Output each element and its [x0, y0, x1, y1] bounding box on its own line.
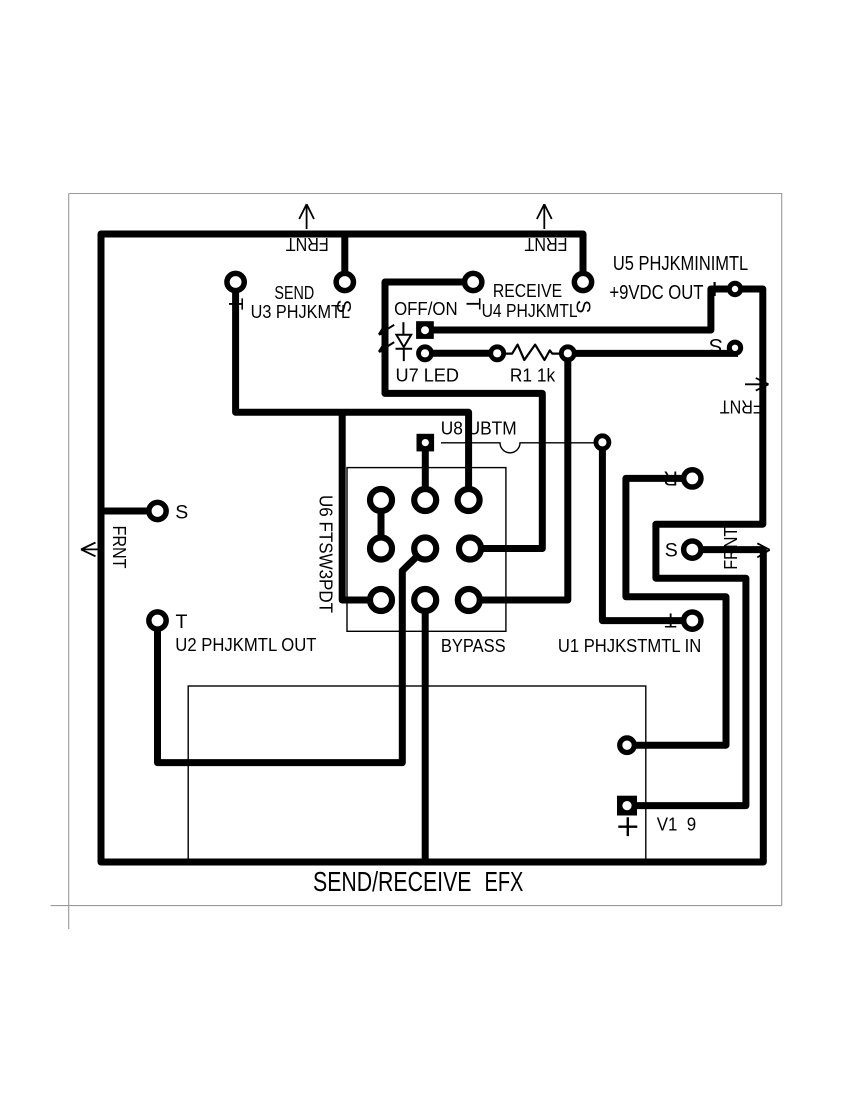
svg-text:S: S	[332, 300, 354, 313]
svg-text:FRNT: FRNT	[720, 527, 741, 570]
svg-text:T: T	[176, 611, 188, 633]
svg-text:U6 FTSW3PDT: U6 FTSW3PDT	[316, 495, 337, 613]
svg-text:SEND: SEND	[274, 282, 314, 303]
svg-text:U1 PHJKSTMTL IN: U1 PHJKSTMTL IN	[558, 635, 701, 656]
svg-text:FRNT: FRNT	[720, 397, 763, 418]
svg-text:S: S	[571, 300, 593, 313]
svg-text:BYPASS: BYPASS	[441, 635, 506, 656]
svg-text:T: T	[664, 608, 676, 630]
svg-text:V1 9: V1 9	[657, 814, 697, 835]
svg-text:U7 LED: U7 LED	[396, 365, 460, 386]
svg-text:S: S	[665, 540, 678, 562]
svg-text:U5 PHJKMINIMTL: U5 PHJKMINIMTL	[613, 253, 748, 275]
svg-text:OFF/ON: OFF/ON	[394, 298, 458, 319]
svg-text:U4 PHJKMTL: U4 PHJKMTL	[482, 300, 578, 321]
svg-text:U2 PHJKMTL OUT: U2 PHJKMTL OUT	[175, 634, 316, 655]
svg-text:T: T	[224, 298, 246, 310]
svg-text:+9VDC OUT: +9VDC OUT	[609, 282, 703, 304]
svg-text:FRNT: FRNT	[525, 234, 568, 255]
svg-text:R: R	[663, 467, 677, 489]
svg-text:SEND/RECEIVE: SEND/RECEIVE	[313, 866, 472, 897]
svg-text:U8 UBTM: U8 UBTM	[441, 418, 517, 439]
svg-text:RECEIVE: RECEIVE	[493, 280, 562, 301]
svg-text:FRNT: FRNT	[109, 526, 130, 569]
svg-text:R1 1k: R1 1k	[510, 365, 556, 386]
svg-text:S: S	[175, 501, 188, 523]
svg-text:S: S	[709, 334, 722, 356]
svg-text:FRNT: FRNT	[286, 234, 329, 255]
svg-text:T: T	[461, 298, 483, 310]
svg-text:EFX: EFX	[485, 866, 524, 897]
